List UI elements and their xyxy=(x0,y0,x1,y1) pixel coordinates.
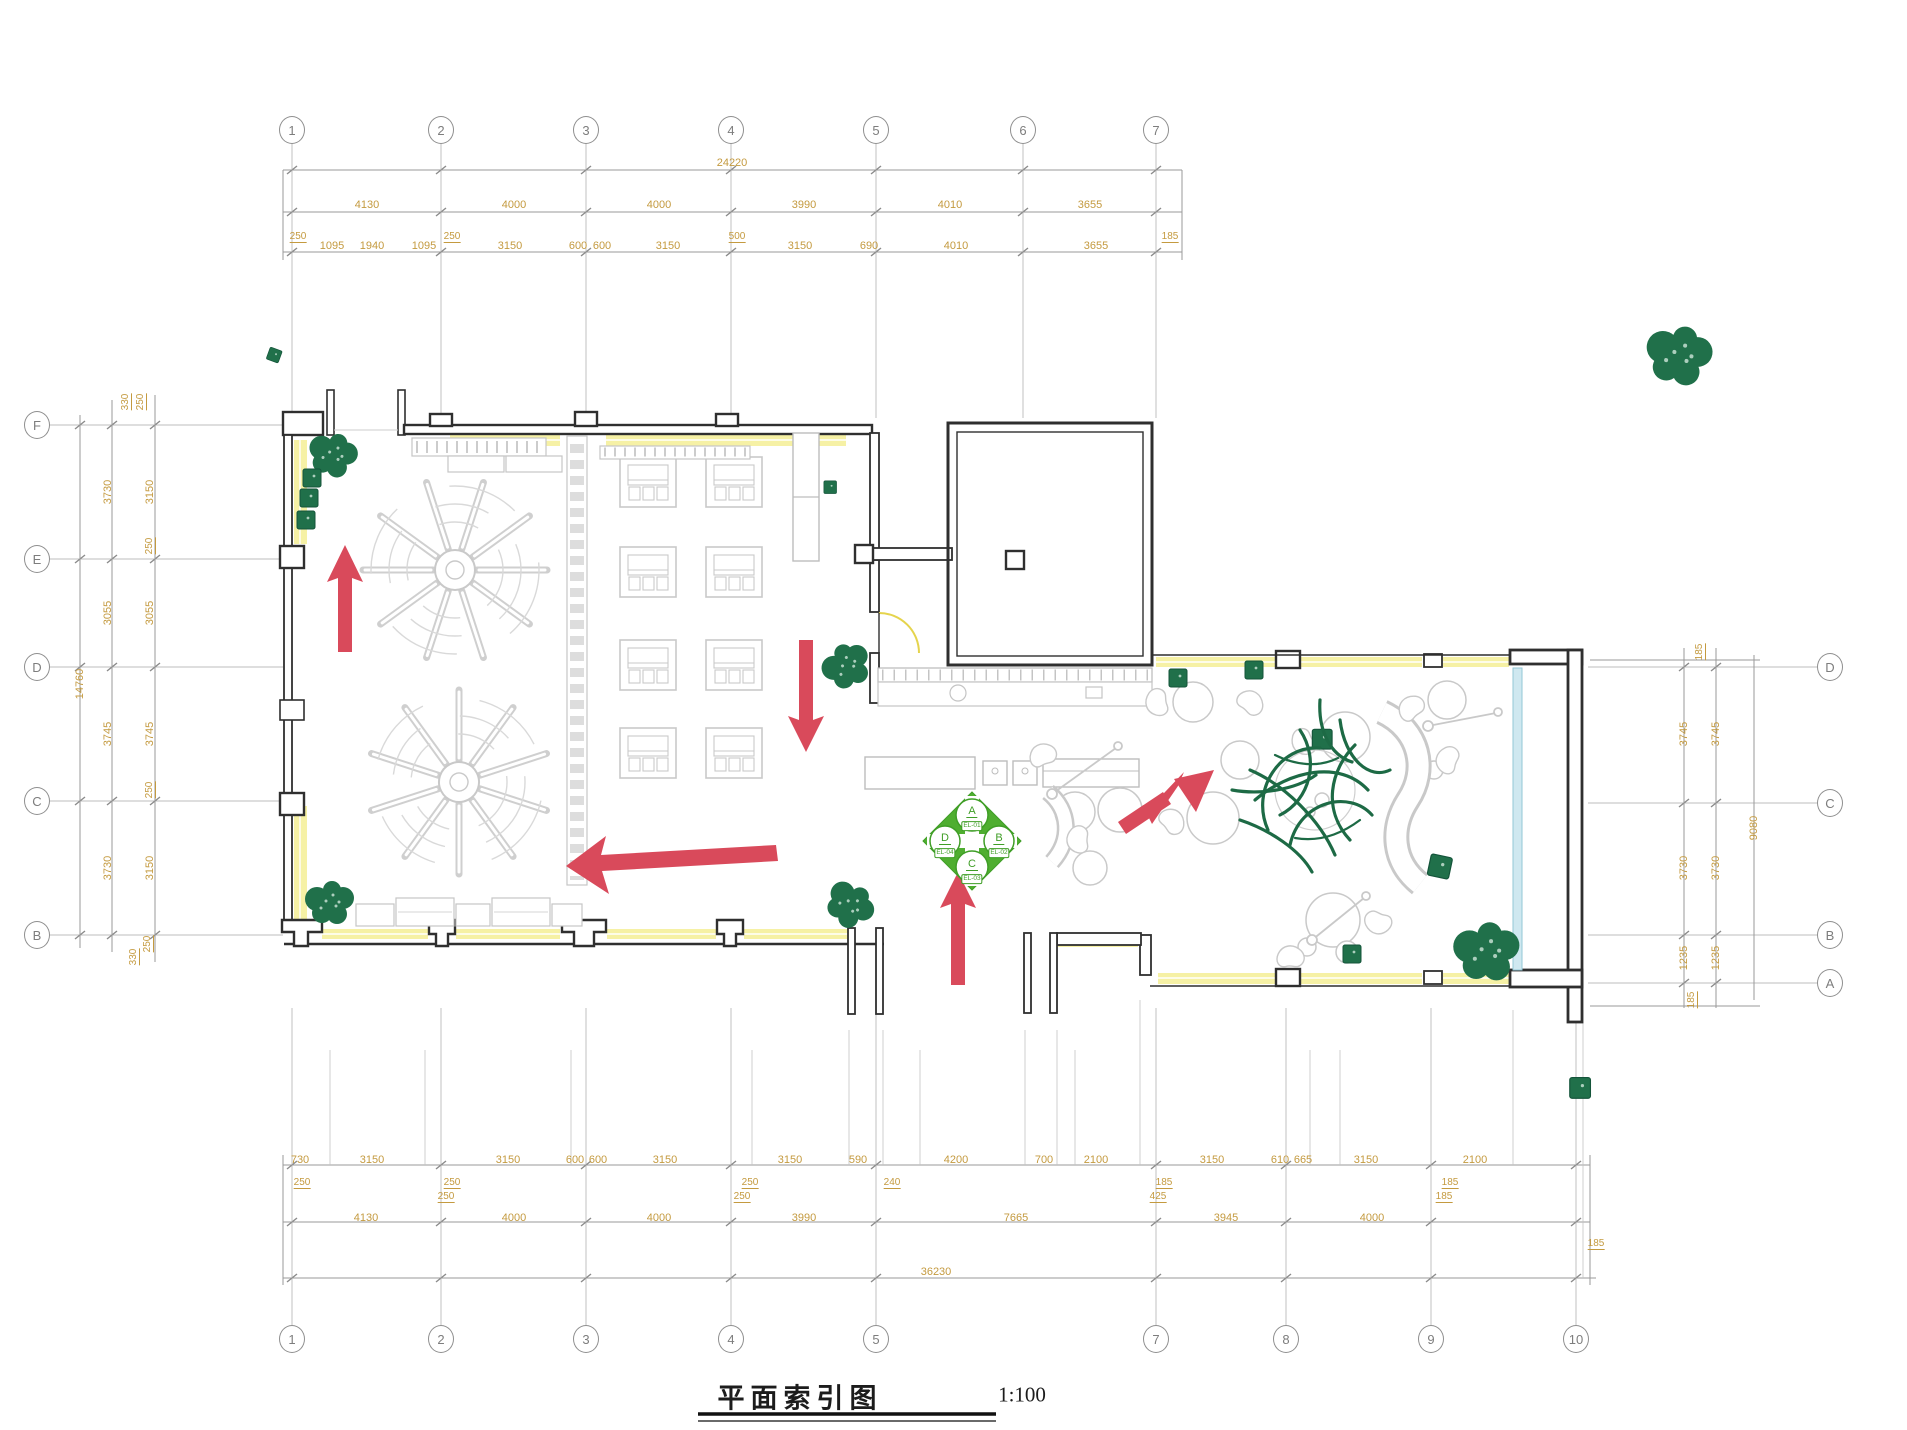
dimension-label: 3150 xyxy=(498,240,522,252)
dimension-label: 3745 xyxy=(1678,722,1690,746)
grid-bubble-right-D: D xyxy=(1817,653,1843,681)
dimension-label: 3745 xyxy=(144,722,156,746)
dimension-label: 185 xyxy=(1156,1177,1173,1189)
dimension-label: 3150 xyxy=(496,1154,520,1166)
grid-bubble-left-C: C xyxy=(24,787,50,815)
dimension-label: 250 xyxy=(144,782,156,799)
dimension-label: 3150 xyxy=(778,1154,802,1166)
dimension-label: 4200 xyxy=(944,1154,968,1166)
elevation-view-letter-B: B xyxy=(993,833,1004,845)
grid-bubble-right-A: A xyxy=(1817,969,1843,997)
grid-bubble-top-5: 5 xyxy=(863,116,889,144)
dimension-label: 240 xyxy=(884,1177,901,1189)
dimension-label: 4010 xyxy=(938,199,962,211)
dimension-label: 3655 xyxy=(1084,240,1108,252)
dimension-label: 3150 xyxy=(653,1154,677,1166)
dimension-label: 665 xyxy=(1294,1154,1312,1166)
dimension-label: 3990 xyxy=(792,1212,816,1224)
dimension-label: 1940 xyxy=(360,240,384,252)
dimension-label: 250 xyxy=(444,231,461,243)
elevation-sheet-tag-EL-03: EL-03 xyxy=(961,874,982,884)
grid-bubble-top-7: 7 xyxy=(1143,116,1169,144)
dimension-label: 3745 xyxy=(1710,722,1722,746)
dimension-label: 610 xyxy=(1271,1154,1289,1166)
dimension-label: 3150 xyxy=(360,1154,384,1166)
dimension-label: 3730 xyxy=(1678,856,1690,880)
grid-bubble-bottom-3: 3 xyxy=(573,1325,599,1353)
elevation-sheet-tag-EL-01: EL-01 xyxy=(961,821,982,831)
dimension-label: 250 xyxy=(290,231,307,243)
dimension-label: 24220 xyxy=(717,157,748,169)
grid-bubble-bottom-4: 4 xyxy=(718,1325,744,1353)
dimension-label: 3730 xyxy=(102,856,114,880)
dimension-label: 3945 xyxy=(1214,1212,1238,1224)
dimension-label: 4000 xyxy=(502,199,526,211)
dimension-label: 9080 xyxy=(1748,816,1760,840)
dimension-label: 330 xyxy=(128,949,140,966)
dimension-label: 3150 xyxy=(1200,1154,1224,1166)
grid-bubble-bottom-8: 8 xyxy=(1273,1325,1299,1353)
dimension-label: 185 xyxy=(1694,644,1706,661)
dimension-label: 3655 xyxy=(1078,199,1102,211)
dimension-label: 185 xyxy=(1436,1191,1453,1203)
dimension-label: 185 xyxy=(1162,231,1179,243)
dimension-label: 185 xyxy=(1588,1238,1605,1250)
dimension-label: 330 xyxy=(120,394,132,411)
dimension-label: 4130 xyxy=(355,199,379,211)
dimension-label: 185 xyxy=(1686,992,1698,1009)
elevation-view-letter-D: D xyxy=(939,833,951,845)
grid-bubble-bottom-7: 7 xyxy=(1143,1325,1169,1353)
dimension-label: 3990 xyxy=(792,199,816,211)
dimension-label: 1095 xyxy=(412,240,436,252)
dimension-label: 4000 xyxy=(647,1212,671,1224)
dimension-label: 3150 xyxy=(788,240,812,252)
elevation-view-letter-A: A xyxy=(966,806,977,818)
dimension-label: 3055 xyxy=(102,601,114,625)
dimension-label: 3055 xyxy=(144,601,156,625)
dimension-label: 250 xyxy=(142,936,154,953)
dimension-label: 600 xyxy=(566,1154,584,1166)
grid-bubble-bottom-1: 1 xyxy=(279,1325,305,1353)
dimension-label: 2100 xyxy=(1084,1154,1108,1166)
grid-bubble-top-4: 4 xyxy=(718,116,744,144)
dimension-label: 250 xyxy=(438,1191,455,1203)
grid-bubble-left-D: D xyxy=(24,653,50,681)
grid-bubble-top-6: 6 xyxy=(1010,116,1036,144)
dimension-label: 1095 xyxy=(320,240,344,252)
floor-plan-canvas: 12345671234578910FEDCBDCBA24220413040004… xyxy=(0,0,1907,1430)
dimension-label: 4130 xyxy=(354,1212,378,1224)
dimension-label: 3150 xyxy=(144,480,156,504)
dimension-label: 3150 xyxy=(1354,1154,1378,1166)
dimension-label: 3745 xyxy=(102,722,114,746)
dimension-label: 700 xyxy=(1035,1154,1053,1166)
dimension-label: 36230 xyxy=(921,1266,952,1278)
dimension-label: 7665 xyxy=(1004,1212,1028,1224)
dimension-label: 2100 xyxy=(1463,1154,1487,1166)
grid-bubble-bottom-10: 10 xyxy=(1563,1325,1589,1353)
elevation-view-letter-C: C xyxy=(966,859,978,871)
grid-bubble-top-2: 2 xyxy=(428,116,454,144)
dimension-label: 3150 xyxy=(656,240,680,252)
dimension-label: 4000 xyxy=(647,199,671,211)
dimension-label: 500 xyxy=(729,231,746,243)
grid-bubble-left-E: E xyxy=(24,545,50,573)
grid-bubble-bottom-9: 9 xyxy=(1418,1325,1444,1353)
grid-bubble-left-B: B xyxy=(24,921,50,949)
grid-bubble-right-C: C xyxy=(1817,789,1843,817)
dimension-label: 600 xyxy=(593,240,611,252)
grid-bubble-bottom-2: 2 xyxy=(428,1325,454,1353)
dimension-label: 730 xyxy=(291,1154,309,1166)
dimension-label: 250 xyxy=(742,1177,759,1189)
dimension-label: 1235 xyxy=(1678,946,1690,970)
dimension-label: 590 xyxy=(849,1154,867,1166)
dimension-label: 250 xyxy=(135,394,147,411)
dimension-label: 185 xyxy=(1442,1177,1459,1189)
grid-bubble-bottom-5: 5 xyxy=(863,1325,889,1353)
elevation-sheet-tag-EL-02: EL-02 xyxy=(988,848,1009,858)
grid-bubble-right-B: B xyxy=(1817,921,1843,949)
dimension-label: 250 xyxy=(294,1177,311,1189)
dimension-label: 250 xyxy=(444,1177,461,1189)
dimension-label: 425 xyxy=(1150,1191,1167,1203)
text-overlay: 12345671234578910FEDCBDCBA24220413040004… xyxy=(0,0,1907,1430)
dimension-label: 1235 xyxy=(1710,946,1722,970)
dimension-label: 250 xyxy=(734,1191,751,1203)
dimension-label: 4000 xyxy=(502,1212,526,1224)
dimension-label: 4000 xyxy=(1360,1212,1384,1224)
dimension-label: 250 xyxy=(144,538,156,555)
dimension-label: 690 xyxy=(860,240,878,252)
grid-bubble-top-3: 3 xyxy=(573,116,599,144)
dimension-label: 3730 xyxy=(102,480,114,504)
dimension-label: 3150 xyxy=(144,856,156,880)
dimension-label: 14760 xyxy=(74,669,86,700)
dimension-label: 3730 xyxy=(1710,856,1722,880)
dimension-label: 600 xyxy=(589,1154,607,1166)
dimension-label: 600 xyxy=(569,240,587,252)
grid-bubble-left-F: F xyxy=(24,411,50,439)
grid-bubble-top-1: 1 xyxy=(279,116,305,144)
elevation-sheet-tag-EL-04: EL-04 xyxy=(934,848,955,858)
dimension-label: 4010 xyxy=(944,240,968,252)
